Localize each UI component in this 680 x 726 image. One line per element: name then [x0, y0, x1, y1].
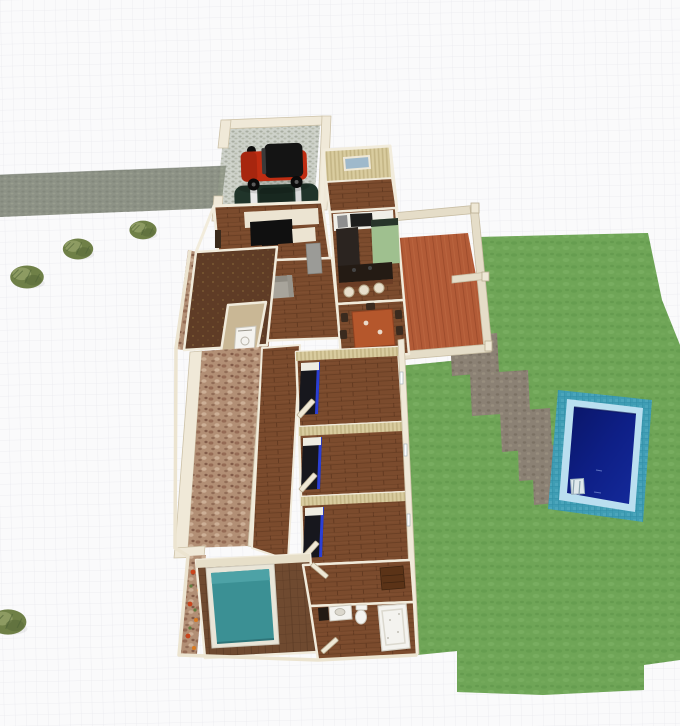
- stove[interactable]: [350, 213, 373, 227]
- window-slit: [400, 372, 403, 384]
- jeep-hood-shade: [240, 151, 257, 182]
- swimming-pool[interactable]: [548, 390, 652, 522]
- sink-unit: [337, 215, 348, 228]
- bathtub[interactable]: [378, 604, 410, 651]
- media-shelf: [292, 227, 316, 243]
- window-slit: [407, 514, 410, 526]
- doorway-gap: [215, 230, 221, 248]
- bedroom-3: [301, 492, 411, 565]
- bed-pillow: [303, 437, 321, 446]
- entry-room: [324, 146, 397, 214]
- island-faucet: [368, 266, 372, 270]
- toilet[interactable]: [356, 605, 368, 624]
- dresser[interactable]: [380, 566, 405, 590]
- jeep-soft-top: [264, 143, 303, 178]
- fridge[interactable]: [371, 218, 400, 265]
- dressing-room: [303, 560, 414, 606]
- master-bed[interactable]: [206, 564, 279, 648]
- dining-table[interactable]: [352, 309, 395, 348]
- tub-speckle: [397, 631, 399, 633]
- island-bar[interactable]: [338, 262, 393, 288]
- entry-window: [344, 156, 370, 170]
- tub-speckle: [398, 613, 400, 615]
- place-setting: [378, 330, 383, 335]
- stool[interactable]: [359, 285, 369, 295]
- vanity[interactable]: [329, 605, 352, 621]
- pool-ladder[interactable]: [571, 479, 585, 495]
- bathroom: [310, 602, 417, 660]
- l-counter[interactable]: [336, 227, 360, 267]
- tub-speckle: [387, 637, 389, 639]
- tub-speckle: [389, 619, 391, 621]
- pergola-post: [482, 272, 489, 281]
- side-cabinet[interactable]: [306, 243, 322, 274]
- 3d-view-canvas[interactable]: [0, 0, 680, 726]
- stool[interactable]: [374, 283, 384, 293]
- red-jeep[interactable]: [236, 143, 310, 195]
- toilet-bowl: [356, 610, 367, 624]
- place-setting: [364, 321, 369, 326]
- bed-pillow: [301, 362, 319, 371]
- pergola-post: [485, 341, 492, 351]
- sink: [335, 609, 345, 616]
- bedroom-2: [299, 422, 407, 497]
- pergola-post: [471, 203, 479, 213]
- bed-pillow: [305, 507, 323, 516]
- vanity-cabinet[interactable]: [318, 607, 329, 621]
- stool[interactable]: [344, 287, 354, 297]
- island-faucet: [352, 268, 356, 272]
- media-screen: [262, 233, 278, 246]
- bedroom-1: [296, 347, 403, 427]
- kitchen: [330, 208, 404, 304]
- window-slit: [404, 444, 407, 456]
- master-bedroom: [196, 554, 318, 658]
